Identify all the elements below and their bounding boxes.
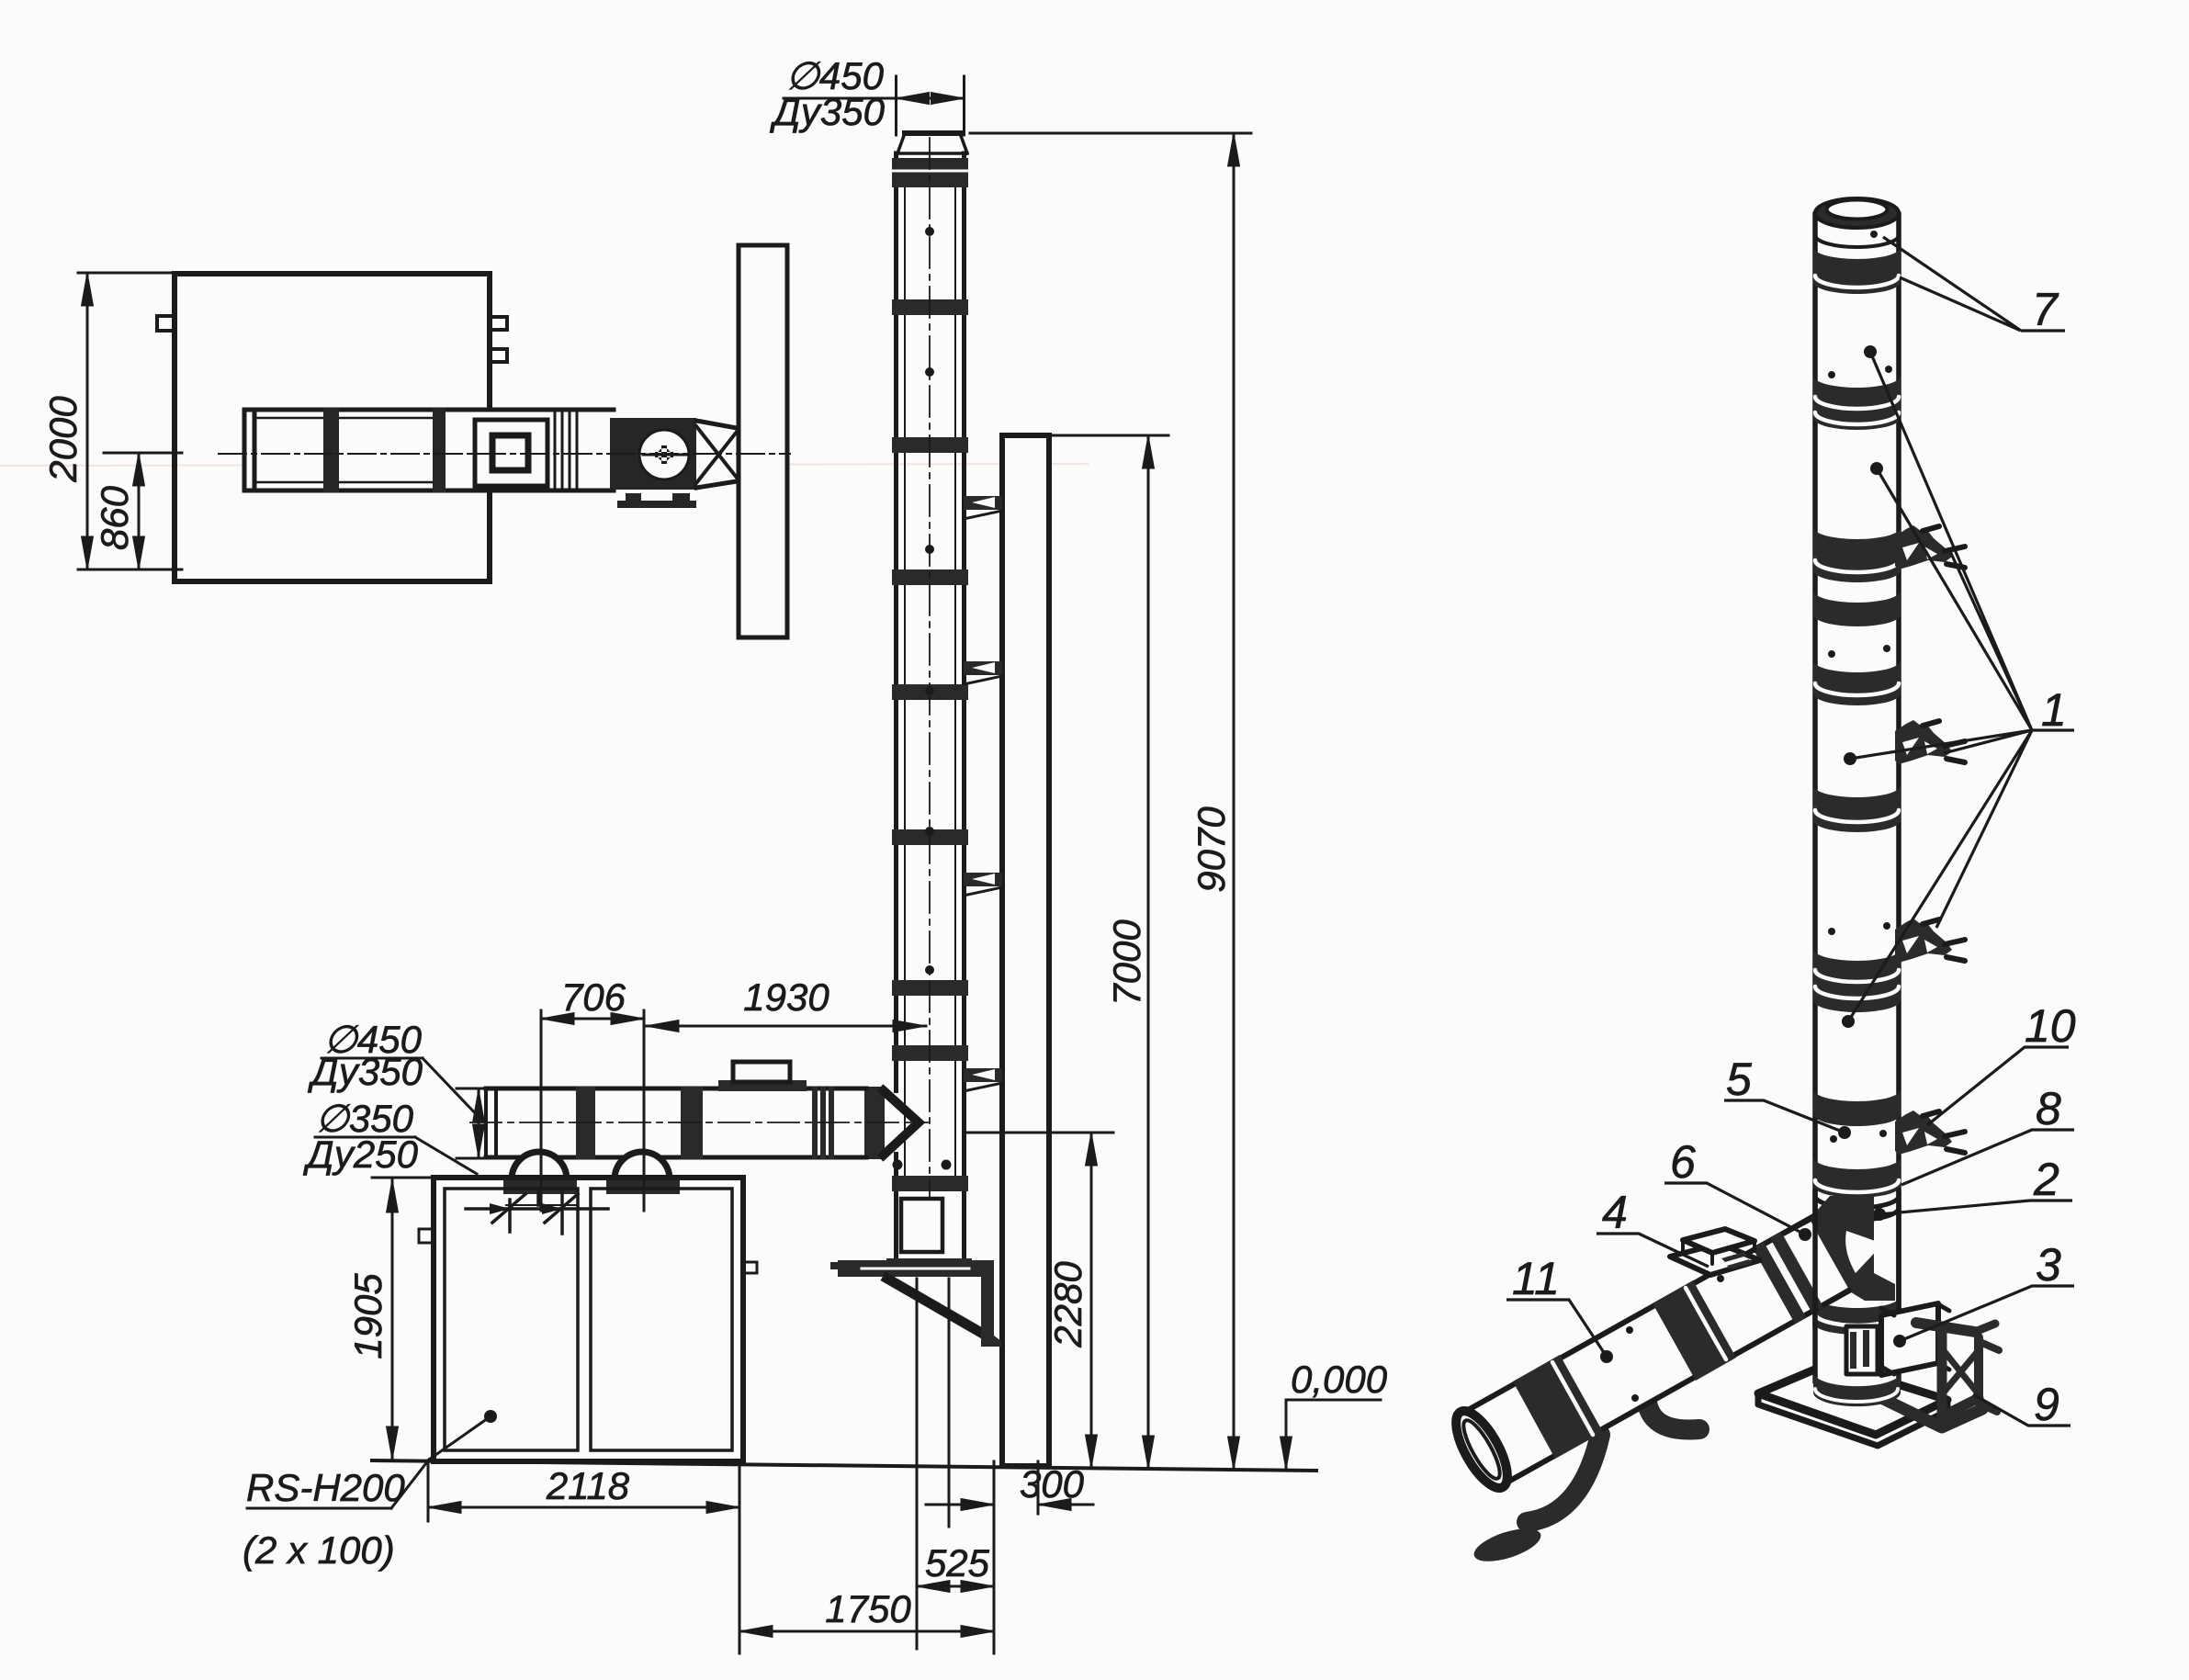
svg-text:Ду250: Ду250 [303, 1133, 419, 1176]
svg-text:2: 2 [2033, 1154, 2059, 1205]
svg-text:3: 3 [2036, 1239, 2061, 1291]
svg-text:2280: 2280 [1046, 1261, 1089, 1348]
svg-text:860: 860 [93, 485, 136, 550]
svg-text:7: 7 [2032, 284, 2059, 335]
svg-text:4: 4 [1602, 1187, 1628, 1238]
svg-text:RS-H200: RS-H200 [246, 1466, 405, 1509]
svg-text:5: 5 [1726, 1054, 1752, 1105]
svg-text:525: 525 [925, 1541, 990, 1584]
svg-text:(2 x 100): (2 x 100) [243, 1528, 395, 1572]
svg-text:7000: 7000 [1105, 919, 1148, 1006]
svg-text:11: 11 [1512, 1253, 1560, 1304]
svg-text:300: 300 [1020, 1462, 1085, 1505]
svg-text:1930: 1930 [743, 975, 829, 1019]
svg-text:6: 6 [1670, 1136, 1696, 1188]
svg-text:1905: 1905 [346, 1273, 389, 1359]
svg-text:2000: 2000 [41, 396, 85, 483]
svg-text:1750: 1750 [825, 1587, 911, 1630]
svg-text:1: 1 [2041, 684, 2067, 736]
svg-text:Ду350: Ду350 [770, 90, 886, 133]
svg-text:0,000: 0,000 [1291, 1358, 1388, 1401]
svg-text:9: 9 [2034, 1379, 2059, 1430]
svg-text:10: 10 [2025, 1000, 2076, 1052]
svg-text:2118: 2118 [546, 1464, 630, 1507]
svg-text:Ду350: Ду350 [308, 1050, 423, 1093]
svg-text:8: 8 [2036, 1083, 2061, 1134]
svg-text:9070: 9070 [1190, 806, 1233, 893]
svg-text:706: 706 [561, 975, 626, 1019]
